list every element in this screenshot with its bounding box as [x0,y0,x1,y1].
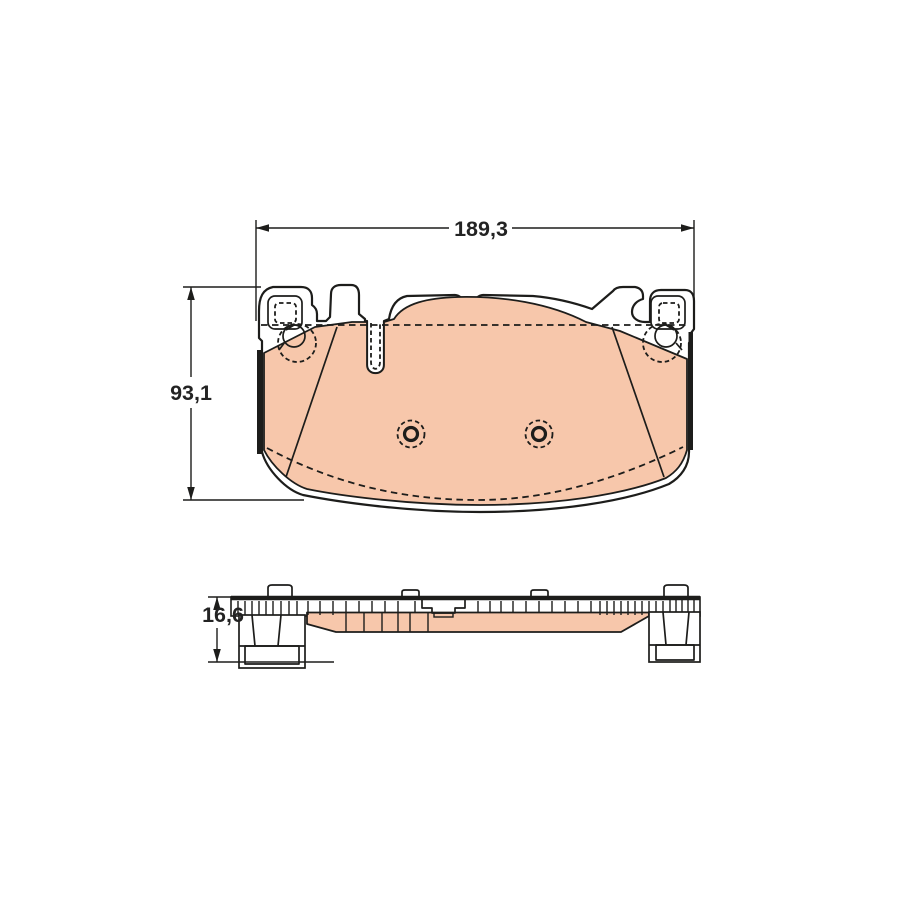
brake-pad-edge-view [231,585,700,668]
height-dimension-label: 93,1 [170,381,212,405]
height-arrow-top [187,287,195,300]
brake-pad-drawing: 189,3 93,1 16,6 [0,0,900,900]
width-arrow-left [256,224,269,232]
center-notch-hidden-edge [371,323,380,369]
left-clip-body [239,615,305,668]
left-backplate-edge-band [257,350,262,454]
technical-drawing-page: 189,3 93,1 16,6 [0,0,900,900]
left-retainer-clip [239,615,305,668]
height-arrow-bottom [187,487,195,500]
width-arrow-right [681,224,694,232]
left-clip-tab [268,585,292,597]
thickness-dimension-label: 16,6 [202,603,244,627]
brake-pad-front-view [257,285,694,512]
thickness-arrow-bottom [213,649,221,662]
width-dimension-label: 189,3 [454,217,508,241]
right-backplate-edge-band [689,332,694,450]
friction-edge-strip [307,613,649,633]
right-clip-tab [664,585,688,597]
